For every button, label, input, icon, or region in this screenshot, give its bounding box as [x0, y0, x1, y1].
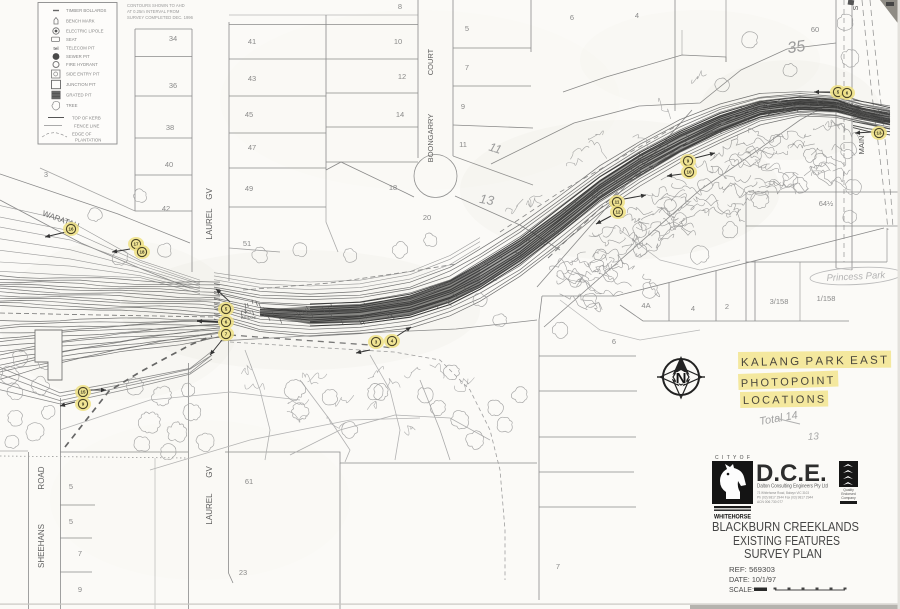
svg-text:CONTOURS SHOWN TO AHD: CONTOURS SHOWN TO AHD: [127, 3, 185, 8]
svg-text:AT 0.25m INTERVAL FROM: AT 0.25m INTERVAL FROM: [127, 9, 180, 14]
svg-text:13: 13: [807, 431, 819, 443]
svg-text:64½: 64½: [819, 199, 834, 208]
svg-text:SIDE ENTRY PIT: SIDE ENTRY PIT: [66, 72, 100, 77]
svg-text:SCALE:: SCALE:: [729, 587, 754, 594]
svg-text:ELECTRIC L/POLE: ELECTRIC L/POLE: [66, 29, 104, 34]
svg-text:C I T Y O F: C I T Y O F: [715, 455, 751, 461]
svg-text:6: 6: [612, 337, 616, 346]
svg-text:34: 34: [169, 34, 177, 43]
svg-text:TREE: TREE: [66, 103, 78, 108]
svg-text:10: 10: [686, 170, 692, 175]
svg-text:Company: Company: [841, 496, 856, 500]
svg-text:16: 16: [68, 227, 74, 232]
svg-text:36: 36: [169, 81, 177, 90]
svg-text:7: 7: [556, 562, 560, 571]
svg-text:SHEEHANS: SHEEHANS: [37, 524, 46, 568]
svg-text:FIRE HYDRANT: FIRE HYDRANT: [66, 62, 98, 67]
svg-text:3: 3: [44, 170, 48, 179]
svg-text:TELECOM PIT: TELECOM PIT: [66, 46, 95, 51]
svg-text:Ph (03) 9817 2944 Fax (03) 9: Ph (03) 9817 2944 Fax (03) 9817 2944: [757, 496, 813, 500]
svg-text:TOP OF KERB: TOP OF KERB: [72, 116, 101, 121]
svg-text:49: 49: [245, 184, 253, 193]
svg-text:4: 4: [691, 304, 695, 313]
svg-text:SEAT: SEAT: [66, 37, 77, 42]
svg-text:35: 35: [786, 38, 806, 57]
svg-text:L O C A T I O N S: L O C A T I O N S: [743, 394, 824, 407]
svg-text:tel: tel: [53, 46, 58, 51]
svg-text:7: 7: [78, 549, 82, 558]
svg-text:SURVEY COMPLETED DEC. 1996: SURVEY COMPLETED DEC. 1996: [127, 15, 194, 20]
svg-text:11: 11: [615, 200, 620, 205]
svg-text:40: 40: [165, 160, 173, 169]
svg-text:60: 60: [811, 25, 819, 34]
svg-text:Dalton Consulting Engineers Pt: Dalton Consulting Engineers Pty Ltd: [757, 484, 828, 490]
svg-text:REF: 569303: REF: 569303: [729, 567, 775, 574]
svg-text:DATE: 10/1/97: DATE: 10/1/97: [729, 577, 776, 584]
svg-text:TIMBER BOLLARDS: TIMBER BOLLARDS: [66, 8, 106, 13]
svg-text:N: N: [676, 370, 687, 387]
svg-text:9: 9: [78, 585, 82, 594]
svg-text:20: 20: [423, 213, 431, 222]
svg-text:SURVEY PLAN: SURVEY PLAN: [744, 547, 822, 561]
svg-text:K A L A N G P A R K E A S T: K A L A N G P A R K E A S T: [741, 354, 887, 369]
svg-text:6: 6: [570, 13, 574, 22]
svg-text:GV: GV: [205, 188, 214, 200]
svg-text:51: 51: [243, 239, 251, 248]
svg-text:41: 41: [248, 37, 256, 46]
svg-text:4A: 4A: [641, 301, 650, 310]
svg-text:73 Whitehorse Road, Balwyn VIC: 73 Whitehorse Road, Balwyn VIC 3103: [757, 491, 809, 495]
svg-text:S: S: [853, 5, 860, 10]
svg-text:EDGE OF: EDGE OF: [72, 132, 92, 137]
svg-text:13: 13: [876, 131, 882, 136]
svg-text:ROAD: ROAD: [37, 466, 46, 489]
svg-text:EXISTING FEATURES: EXISTING FEATURES: [733, 534, 840, 548]
svg-text:3/158: 3/158: [770, 297, 789, 306]
svg-text:38: 38: [166, 123, 174, 132]
svg-text:18: 18: [139, 250, 145, 255]
svg-text:JUNCTION PIT: JUNCTION PIT: [66, 82, 96, 87]
svg-text:BENCH MARK: BENCH MARK: [66, 19, 95, 24]
svg-text:12: 12: [615, 210, 621, 215]
svg-text:15: 15: [80, 390, 86, 395]
svg-text:GRATED PIT: GRATED PIT: [66, 93, 92, 98]
svg-text:LAUREL: LAUREL: [205, 208, 214, 240]
svg-text:PLANTATION: PLANTATION: [75, 138, 101, 143]
svg-text:2: 2: [725, 302, 729, 311]
svg-text:BLACKBURN CREEKLANDS: BLACKBURN CREEKLANDS: [712, 519, 859, 534]
svg-text:ACN 006 730 077: ACN 006 730 077: [757, 500, 783, 504]
svg-text:8: 8: [398, 2, 402, 11]
svg-text:1/158: 1/158: [817, 294, 836, 303]
svg-text:FENCE LINE: FENCE LINE: [74, 124, 99, 129]
svg-text:42: 42: [162, 204, 170, 213]
svg-text:SEWER PIT: SEWER PIT: [66, 54, 90, 59]
